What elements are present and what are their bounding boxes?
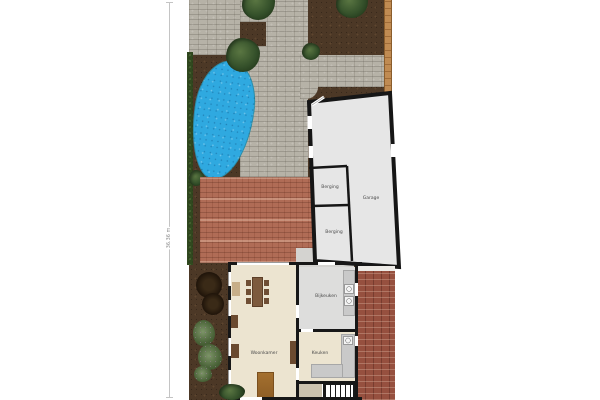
room-label-woonkamer: Woonkamer — [251, 351, 278, 356]
garage-door-gap — [309, 146, 314, 158]
chair — [246, 289, 251, 295]
window-gap — [355, 283, 358, 296]
sink-icon — [343, 336, 353, 345]
fence — [384, 0, 392, 93]
hedge — [187, 52, 193, 265]
dimension-label: 36.36 m — [166, 227, 172, 250]
cabinet — [232, 282, 240, 296]
chair — [264, 289, 269, 295]
room-label-keuken: Keuken — [312, 351, 328, 356]
chair — [246, 280, 251, 286]
shrub — [193, 320, 215, 346]
rug — [257, 372, 274, 400]
shrub — [194, 366, 212, 382]
garage-window-gap — [391, 144, 396, 157]
plant-spiky — [202, 293, 224, 315]
wall-keuken-hal — [299, 381, 358, 384]
garage-outline — [309, 93, 399, 267]
window-gap — [228, 272, 231, 286]
room-label-garage: Garage — [363, 195, 380, 201]
room-label-bijkeuken: Bijkeuken — [315, 294, 337, 299]
chair — [264, 298, 269, 304]
chair — [246, 298, 251, 304]
brick-side-path — [357, 271, 395, 400]
cabinet — [231, 344, 239, 358]
dimension-line — [169, 2, 170, 398]
washer-icon — [344, 284, 354, 294]
kitchen-counter — [311, 364, 343, 378]
window-gap — [237, 262, 289, 265]
door-gap — [318, 262, 335, 265]
room-label-berging-bottom: Berging — [325, 229, 343, 235]
site-plan: Berging Garage Berging — [0, 0, 600, 400]
room-label-berging-top: Berging — [321, 184, 339, 190]
cabinet — [231, 315, 238, 328]
garage-door-gap — [308, 116, 313, 129]
dryer-icon — [344, 296, 354, 306]
door-gap — [301, 329, 313, 332]
dining-table — [252, 277, 263, 307]
garage-building: Berging Garage Berging — [303, 86, 403, 276]
window-gap — [228, 338, 231, 356]
dimension-tick-bottom — [166, 397, 173, 398]
door-gap — [296, 368, 299, 380]
paving-band-right — [300, 55, 390, 87]
chair — [264, 280, 269, 286]
dimension-tick-top — [166, 2, 173, 3]
door-gap — [296, 305, 299, 318]
window-gap — [355, 336, 358, 346]
window-gap — [228, 300, 231, 316]
